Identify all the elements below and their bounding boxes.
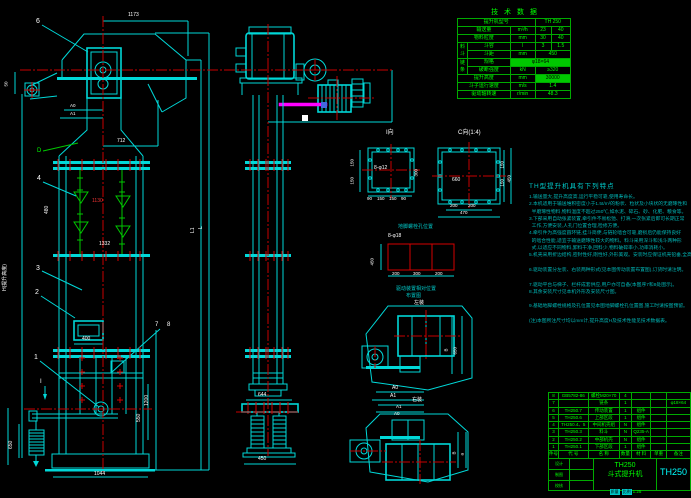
view-c-dim: 470 [460, 211, 468, 216]
tech-table: 提升机型号TH 250 输送量m³/h2340 物料粒度mm3040 料斗斗容l… [457, 18, 571, 99]
bom-cell: 1 [619, 400, 631, 407]
tech-cell: 23 [535, 27, 551, 35]
side-view [236, 27, 392, 464]
tech-cell: 规格 [468, 59, 511, 67]
machine-model: TH250 [594, 461, 656, 470]
view-c-dim: 150 [501, 161, 506, 169]
dim-1332-left: 1332 [0, 429, 1, 440]
flange-detail-i [360, 148, 414, 196]
bom-cell [559, 400, 589, 407]
tech-cell: mm [510, 35, 535, 43]
note-line: 式,以适应不同物料,卸料干净,回料少,物料破碎率小,功率消耗小。 [529, 245, 691, 252]
tech-cell: 1.5 [551, 43, 570, 51]
tech-table-title: 技 术 数 据 [457, 7, 573, 17]
plan-right-label: 右装 [412, 398, 422, 403]
anchor-bolt-callout: 8-φ18 [388, 234, 401, 239]
bom-cell: N [619, 436, 631, 443]
dim-1200: 1200 [145, 395, 150, 406]
bom-row: 7链条1φ18×64 [549, 400, 691, 407]
plan-left-dim: 650 [454, 347, 459, 355]
anchor-dim: 200 [392, 272, 400, 277]
bom-row: 6TH250.7传动装置1组件 [549, 407, 691, 414]
plan-title-line2: 布置图 [406, 294, 421, 299]
plan-left-dim: B [445, 348, 450, 351]
sign-value [570, 470, 593, 480]
balloon-4: 4 [37, 175, 41, 182]
tech-cell: 输送量 [458, 27, 511, 35]
tech-group-cell: 料斗 [458, 43, 468, 59]
balloon-7: 7 [155, 322, 158, 328]
bom-cell: φ18×64 [666, 400, 690, 407]
tech-cell: m³/h [510, 27, 535, 35]
bom-cell: TH250.1 [559, 444, 589, 451]
bom-cell [666, 414, 690, 421]
tech-cell: 450 [535, 51, 570, 59]
bom-cell: 组件 [631, 407, 651, 414]
view-c-dim: 660 [452, 178, 460, 183]
note-line [529, 260, 691, 267]
notes-title: TH型提升机具有下列特点 [529, 180, 691, 190]
view-i-dim: 150 [389, 197, 397, 202]
tech-cell: 40 [551, 27, 570, 35]
view-c-label: C向(1:4) [458, 130, 481, 136]
bom-cell: N [619, 429, 631, 436]
bom-cell [666, 436, 690, 443]
view-mark-d: D [37, 148, 41, 154]
bom-cell [631, 393, 651, 400]
bom-cell: 上部区段 [588, 414, 619, 421]
tech-cell: 30 [535, 35, 551, 43]
note-line: 4.牵引件为高强度圆环链,挂斗简便,与链轮啮合可靠,磨损后仍能保持良好 [529, 230, 691, 237]
dim-l1: L1 [191, 227, 196, 233]
bom-cell: 2 [549, 436, 559, 443]
plan-right-dim: B [453, 451, 458, 454]
balloon-1: 1 [34, 354, 38, 361]
bom-cell: 中部机壳 [588, 436, 619, 443]
bom-cell: GB5782-86 [559, 393, 589, 400]
tech-cell: 提升机型号 [458, 19, 536, 27]
drive-plan-right [350, 405, 468, 482]
bom-cell: 8 [549, 393, 559, 400]
bom-cell: TH250.2 [559, 436, 589, 443]
sign-label: 制图 [549, 470, 570, 480]
bom-cell: 6 [549, 407, 559, 414]
tech-cell: 提升高度 [458, 75, 511, 83]
balloon-8: 8 [167, 322, 170, 328]
tech-cell: kN [510, 67, 535, 75]
view-i-dim: 90 [367, 197, 372, 202]
dim-head-offset: 712 [117, 139, 125, 144]
sign-value [570, 459, 593, 469]
tech-cell: 30000 [535, 75, 570, 83]
tech-cell: TH 250 [535, 19, 570, 27]
bom-cell: 螺栓M20×70 [588, 393, 619, 400]
bom-cell: 传动装置 [588, 407, 619, 414]
view-c-dim: 200 [450, 204, 458, 209]
view-i-label: I向 [386, 130, 394, 136]
bom-cell: 组件 [631, 444, 651, 451]
view-c-dim: 150 [501, 179, 506, 187]
note-line: 半磨琢性物料,物料温度不超过250℃,如水泥、碎石、砂、化肥、粮食等。 [529, 209, 691, 216]
mass-label: 质量 [610, 489, 620, 495]
tech-cell: ≥320 [535, 67, 570, 75]
machine-name: 斗式提升机 [594, 470, 656, 479]
tech-data-table: 技 术 数 据 提升机型号TH 250 输送量m³/h2340 物料粒度mm30… [457, 7, 573, 99]
bom-cell [651, 400, 666, 407]
note-line [529, 296, 691, 303]
bom-cell: Q235-A [631, 429, 651, 436]
parts-list: 8GB5782-86螺栓M20×704 7链条1φ18×64 6TH250.7传… [548, 392, 691, 459]
bom-cell: 中间机壳组 [588, 422, 619, 429]
bom-cell [651, 422, 666, 429]
section-mark-i: I [40, 379, 42, 385]
bom-cell: 3 [549, 429, 559, 436]
anchor-dim: 200 [435, 272, 443, 277]
note-line: 7.驱动平台与梯子、栏杆成套供应,用户亦可自备(本图序7和8处图示)。 [529, 282, 691, 289]
tech-cell: m/s [510, 83, 535, 91]
bom-cell: 1 [619, 444, 631, 451]
bom-cell: 组件 [631, 436, 651, 443]
bom-cell: 链条 [588, 400, 619, 407]
bom-cell: TH250.4、5 [559, 422, 589, 429]
sign-label: 设计 [549, 459, 570, 469]
dim-a1: A1 [70, 112, 76, 117]
bom-cell: TH250.7 [559, 407, 589, 414]
bom-cell [666, 393, 690, 400]
dim-400: 400 [82, 337, 90, 342]
tech-cell: 48.3 [535, 91, 570, 99]
cad-drawing-sheet: { "fv":{"d1173":"1173","d712":"712","a0"… [0, 0, 691, 491]
dim-l: L [199, 226, 204, 229]
view-i-bolt-callout: 8-φ12 [374, 166, 387, 171]
bom-cell: TH250.3 [559, 429, 589, 436]
bom-cell: 4 [619, 393, 631, 400]
title-block-row: 校核 [549, 481, 593, 491]
bom-cell: TH250.6 [559, 414, 589, 421]
balloon-3: 3 [36, 265, 40, 272]
tech-cell: 斗容 [468, 43, 511, 51]
dim-top-width: 1173 [128, 13, 139, 18]
bom-cell: 7 [549, 400, 559, 407]
note-line [529, 274, 691, 281]
dim-1130: 1130 [92, 199, 103, 204]
anchor-detail-title: 地脚螺栓孔位置 [398, 225, 433, 230]
note-line: 9.基础地脚螺栓规格及孔位置见本图地脚螺栓孔位置图,施工时请按图预留。 [529, 303, 691, 310]
dim-450-side: 450 [258, 457, 266, 462]
feature-notes: TH型提升机具有下列特点 1.输送量大,提升高度高,运行平稳可靠,使用寿命长。 … [529, 180, 691, 325]
bom-cell [651, 407, 666, 414]
title-block-name: TH250 斗式提升机 质量比例1:25 [594, 459, 657, 490]
dim-644: 644 [258, 393, 266, 398]
dim-650: 650 [9, 441, 14, 449]
plan-right-dim: A0 [394, 412, 400, 417]
scale-value: 1:25 [633, 489, 642, 494]
note-line: 的啮合性能,适宜于输送磨琢性较大的物料。料斗采用深斗和浅斗两种形 [529, 238, 691, 245]
bom-cell: 料斗 [588, 429, 619, 436]
bom-cell [651, 444, 666, 451]
sign-value [570, 481, 593, 491]
title-block-drawing-no: TH250 [657, 459, 690, 490]
tech-cell: 1.4 [535, 83, 570, 91]
tech-cell: 驱动轴转速 [458, 91, 511, 99]
bom-cell: 4 [549, 422, 559, 429]
dim-50: 50 [5, 81, 10, 86]
tech-cell: 破断强度 [468, 67, 511, 75]
plan-title-line1: 驱动装置相对位置 [396, 287, 436, 292]
title-block-row: 设计 [549, 459, 593, 470]
bom-row: 5TH250.6上部区段1组件 [549, 414, 691, 421]
bom-cell [666, 429, 690, 436]
anchor-dim: 300 [413, 272, 421, 277]
view-i-dim: 90 [401, 197, 406, 202]
note-line: 3.下部采用自动张紧装置,牵引件不易松弛、打滑,一次张紧后即可长期正常 [529, 216, 691, 223]
bom-cell: 组件 [631, 422, 651, 429]
tech-cell: l [510, 43, 535, 51]
plan-right-dim: a [461, 453, 466, 456]
anchor-dim: 450 [371, 258, 376, 266]
note-line: 1.输送量大,提升高度高,运行平稳可靠,使用寿命长。 [529, 194, 691, 201]
bom-row: 1TH250.1下部区段1组件 [549, 444, 691, 451]
drawing-number: TH250 [660, 465, 690, 479]
plan-left-label: 左装 [414, 301, 424, 306]
tech-cell: mm [510, 75, 535, 83]
bom-row: 2TH250.2中部机壳N组件 [549, 436, 691, 443]
tech-cell: 斗子运行速度 [458, 83, 511, 91]
bom-cell [651, 429, 666, 436]
tech-group-cell: 链条 [458, 59, 468, 75]
note-line: 6.驱动装置分左装、右装两种形式(见本图传动装置布置图),订货时请注明。 [529, 267, 691, 274]
view-i-dim: 150 [377, 197, 385, 202]
bom-cell: 下部区段 [588, 444, 619, 451]
note-line: (注)本图所注尺寸均以mm计,提升高度H及技术性能见技术数据表。 [529, 318, 691, 325]
tech-cell: φ18×64 [510, 59, 570, 67]
view-i-dim: 150 [351, 159, 356, 167]
dim-1044: 1044 [94, 472, 105, 477]
tech-cell: r/min [510, 91, 535, 99]
bom-cell: 1 [549, 444, 559, 451]
tech-cell: 3 [535, 43, 551, 51]
view-i-dim: 300 [415, 169, 420, 177]
tech-cell: 物料粒度 [458, 35, 511, 43]
title-block: 设计 制图 校核 TH250 斗式提升机 质量比例1:25 TH250 [548, 458, 691, 491]
bom-cell [651, 393, 666, 400]
tech-cell: 40 [551, 35, 570, 43]
bom-row: 3TH250.3料斗NQ235-A [549, 429, 691, 436]
bom-cell [666, 444, 690, 451]
balloon-2: 2 [35, 289, 39, 296]
dim-480: 480 [45, 206, 50, 214]
bom-row: 8GB5782-86螺栓M20×704 [549, 393, 691, 400]
note-line: 8.其余安装尺寸见本机外形及安装尺寸图。 [529, 289, 691, 296]
plan-right-dim: A1 [396, 405, 402, 410]
bom-row: 4TH250.4、5中间机壳组N组件 [549, 422, 691, 429]
bom-cell [651, 414, 666, 421]
bom-cell: 组件 [631, 414, 651, 421]
view-c-dim: 450 [508, 175, 513, 183]
dim-lift-height: H(提升高度) [3, 264, 8, 291]
bom-table: 8GB5782-86螺栓M20×704 7链条1φ18×64 6TH250.7传… [548, 392, 691, 459]
note-line [529, 311, 691, 318]
dim-550: 550 [137, 414, 142, 422]
balloon-6: 6 [36, 18, 40, 25]
bom-cell [666, 422, 690, 429]
view-i-dim: 150 [351, 177, 356, 185]
dim-a0: A0 [70, 104, 76, 109]
title-block-row: 制图 [549, 470, 593, 481]
scale-label: 比例 [622, 489, 632, 495]
title-block-sign-grid: 设计 制图 校核 [549, 459, 594, 490]
bom-cell: N [619, 422, 631, 429]
bom-cell [651, 436, 666, 443]
note-line: 工作,方便安装,人孔门位置合理,检修方便。 [529, 223, 691, 230]
bom-cell: 1 [619, 407, 631, 414]
plan-left-dim: A0 [392, 386, 398, 391]
title-block-chips: 质量比例1:25 [594, 480, 656, 498]
plan-left-dim: A1 [390, 394, 396, 399]
note-line: 2.本机适用于输送堆积密度小于1.5t/m³的粉状、粒状及小块状的无磨琢性和 [529, 201, 691, 208]
tech-cell: 斗距 [468, 51, 511, 59]
bom-cell: 5 [549, 414, 559, 421]
sign-label: 校核 [549, 481, 570, 491]
dim-1332: 1332 [99, 242, 110, 247]
view-c-dim: 200 [468, 204, 476, 209]
tech-cell: mm [510, 51, 535, 59]
note-line: 5.机壳采用折边结构,密封性好,刚性好,外形美观。安装时应保证机壳铅垂,全高范围… [529, 252, 691, 259]
bom-cell [631, 400, 651, 407]
bom-cell [666, 407, 690, 414]
bom-cell: 1 [619, 414, 631, 421]
